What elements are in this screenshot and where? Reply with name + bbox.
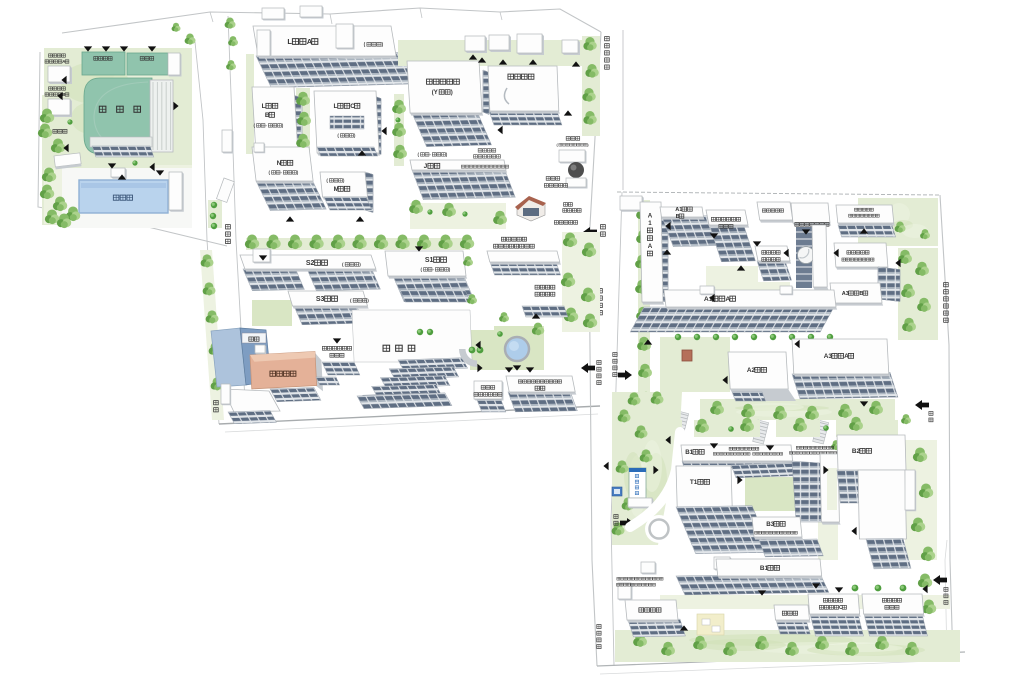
svg-text:L: L	[334, 103, 338, 110]
svg-text:S3: S3	[316, 296, 325, 303]
svg-text:A1: A1	[675, 207, 682, 213]
svg-text:A2: A2	[747, 367, 756, 374]
svg-text:B3: B3	[766, 521, 774, 528]
svg-text:(Y: (Y	[432, 90, 438, 96]
svg-text:T1: T1	[690, 479, 698, 486]
svg-text:S1: S1	[425, 257, 434, 264]
svg-text:B1: B1	[685, 449, 693, 456]
svg-text:J: J	[424, 163, 428, 170]
svg-text:L: L	[287, 37, 292, 46]
svg-text:): )	[451, 90, 453, 96]
svg-text:1: 1	[648, 220, 652, 227]
svg-text:L: L	[262, 103, 266, 110]
svg-text:S2: S2	[306, 260, 315, 267]
svg-text:A: A	[648, 243, 653, 250]
svg-text:A: A	[648, 212, 653, 219]
svg-text:B2: B2	[852, 448, 861, 455]
svg-text:A3: A3	[842, 291, 849, 297]
svg-text:B1: B1	[760, 565, 769, 572]
svg-text:A3: A3	[824, 353, 833, 360]
